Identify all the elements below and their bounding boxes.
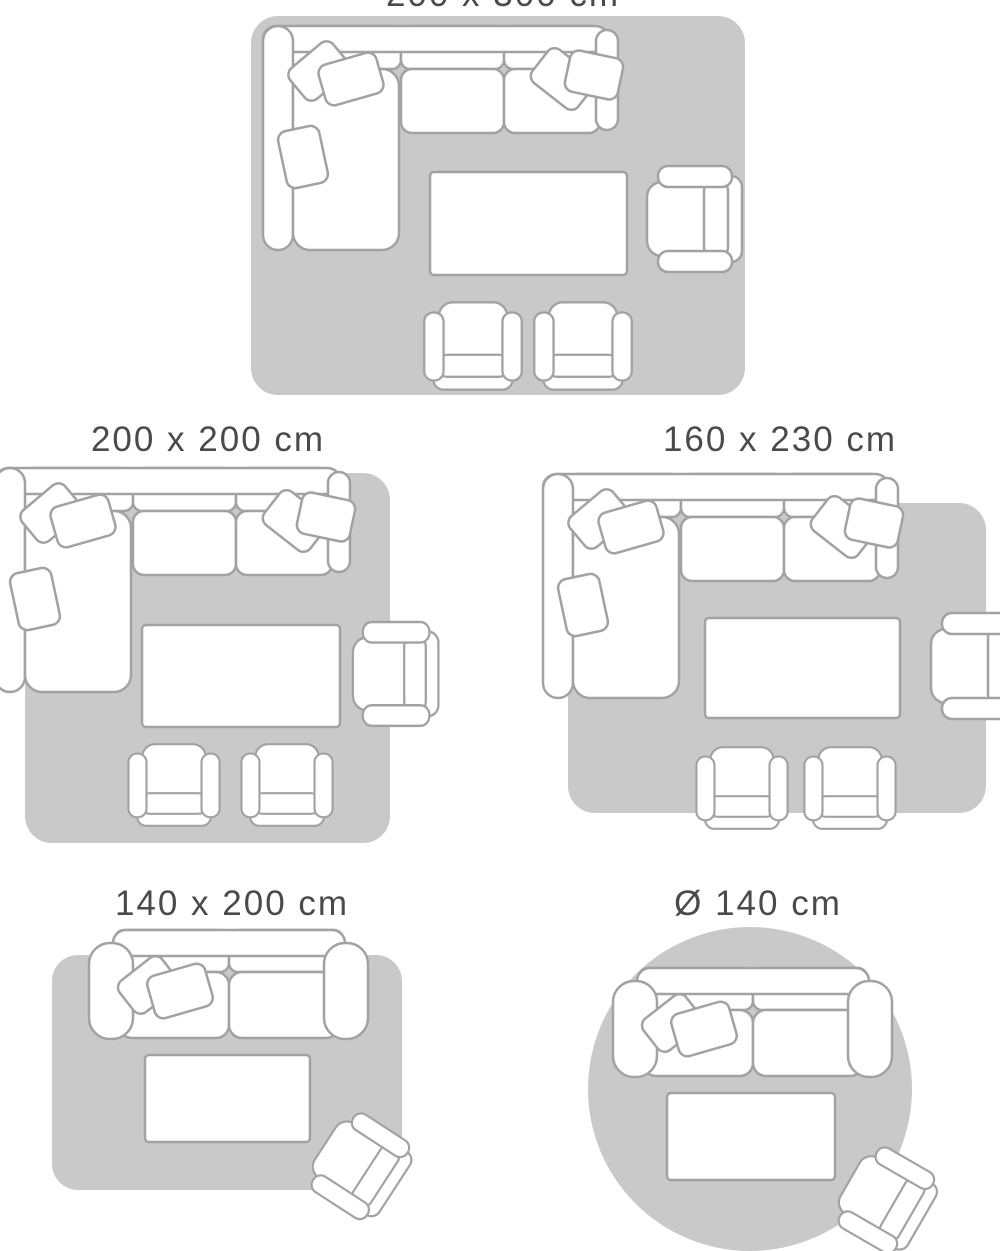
armchair-bottom-right [241,744,332,826]
armchair-bottom-left [128,744,219,826]
diagram-160x230 [543,474,1000,829]
diagram-round-140 [588,927,945,1251]
armchair-bottom-right [804,747,895,829]
size-label-140x200: 140 x 200 cm [115,883,349,925]
armchair-bottom-left [424,302,522,389]
size-label-200x200: 200 x 200 cm [91,419,325,461]
armchair-right [931,613,1000,719]
armchair-bottom-right [534,302,632,389]
size-guide-illustration [0,0,1000,1251]
rug-size-guide: 200 x 300 cm 200 x 200 cm 160 x 230 cm 1… [0,0,1000,1251]
coffee-table [667,1093,835,1180]
diagram-200x300 [251,16,745,395]
armchair-right [353,622,439,726]
size-label-160x230: 160 x 230 cm [663,419,897,461]
coffee-table [142,625,340,727]
two-seat-sofa [613,968,892,1077]
armchair-right [647,166,742,272]
armchair-bottom-left [696,747,787,829]
diagram-140x200 [52,930,420,1227]
size-label-round-140: Ø 140 cm [674,883,842,925]
coffee-table [705,618,900,718]
size-label-200x300: 200 x 300 cm [386,0,620,16]
coffee-table [430,172,627,275]
coffee-table [145,1055,310,1142]
two-seat-sofa [89,930,368,1039]
diagram-200x200 [0,468,438,843]
